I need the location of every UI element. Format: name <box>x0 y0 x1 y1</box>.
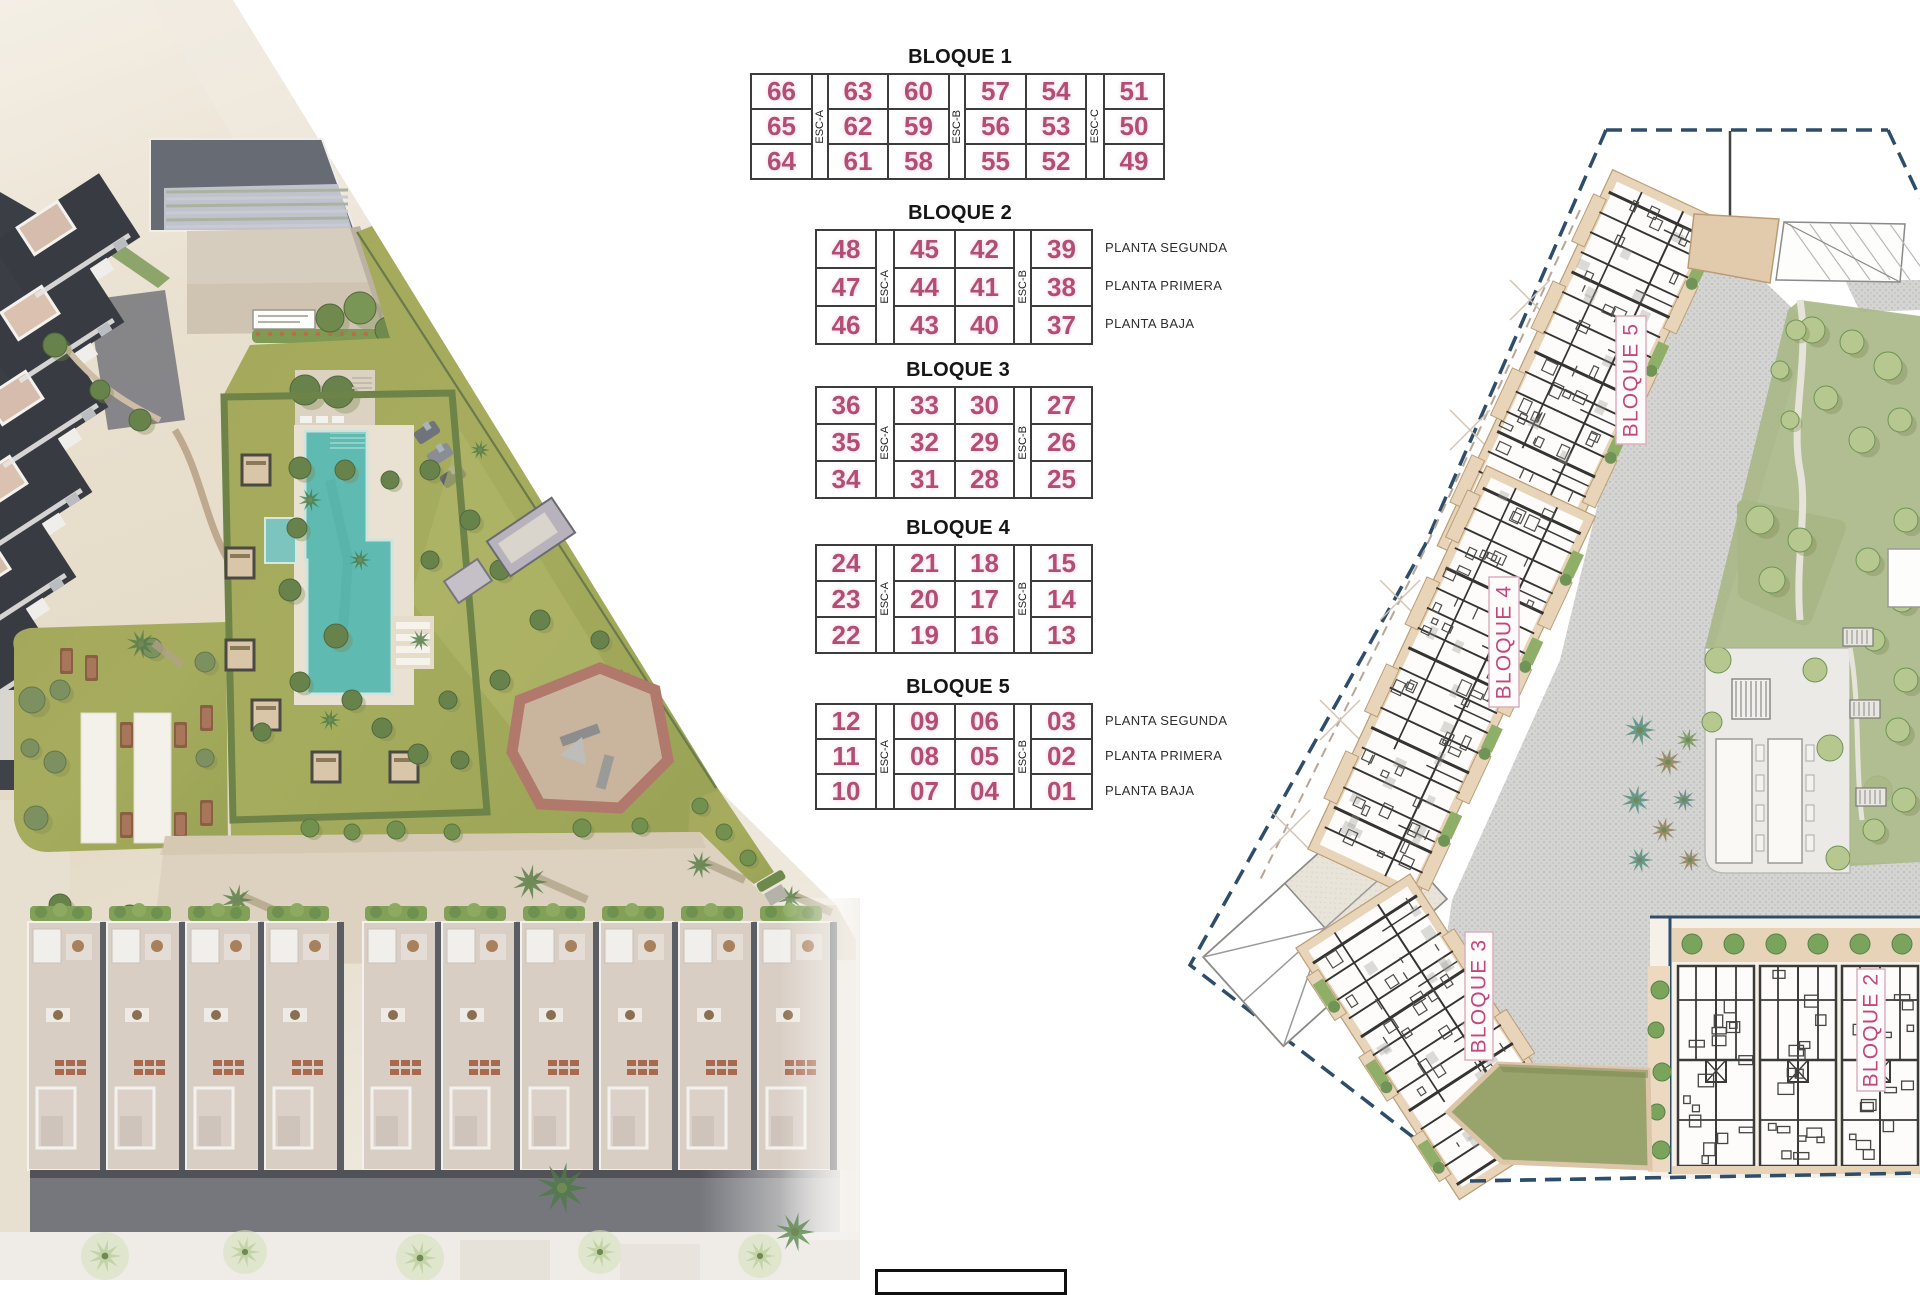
svg-text:BLOQUE 3: BLOQUE 3 <box>1468 939 1491 1054</box>
svg-text:BLOQUE 2: BLOQUE 2 <box>1860 973 1883 1088</box>
svg-text:BLOQUE 5: BLOQUE 5 <box>1620 323 1643 438</box>
svg-text:BLOQUE 4: BLOQUE 4 <box>1493 585 1516 700</box>
